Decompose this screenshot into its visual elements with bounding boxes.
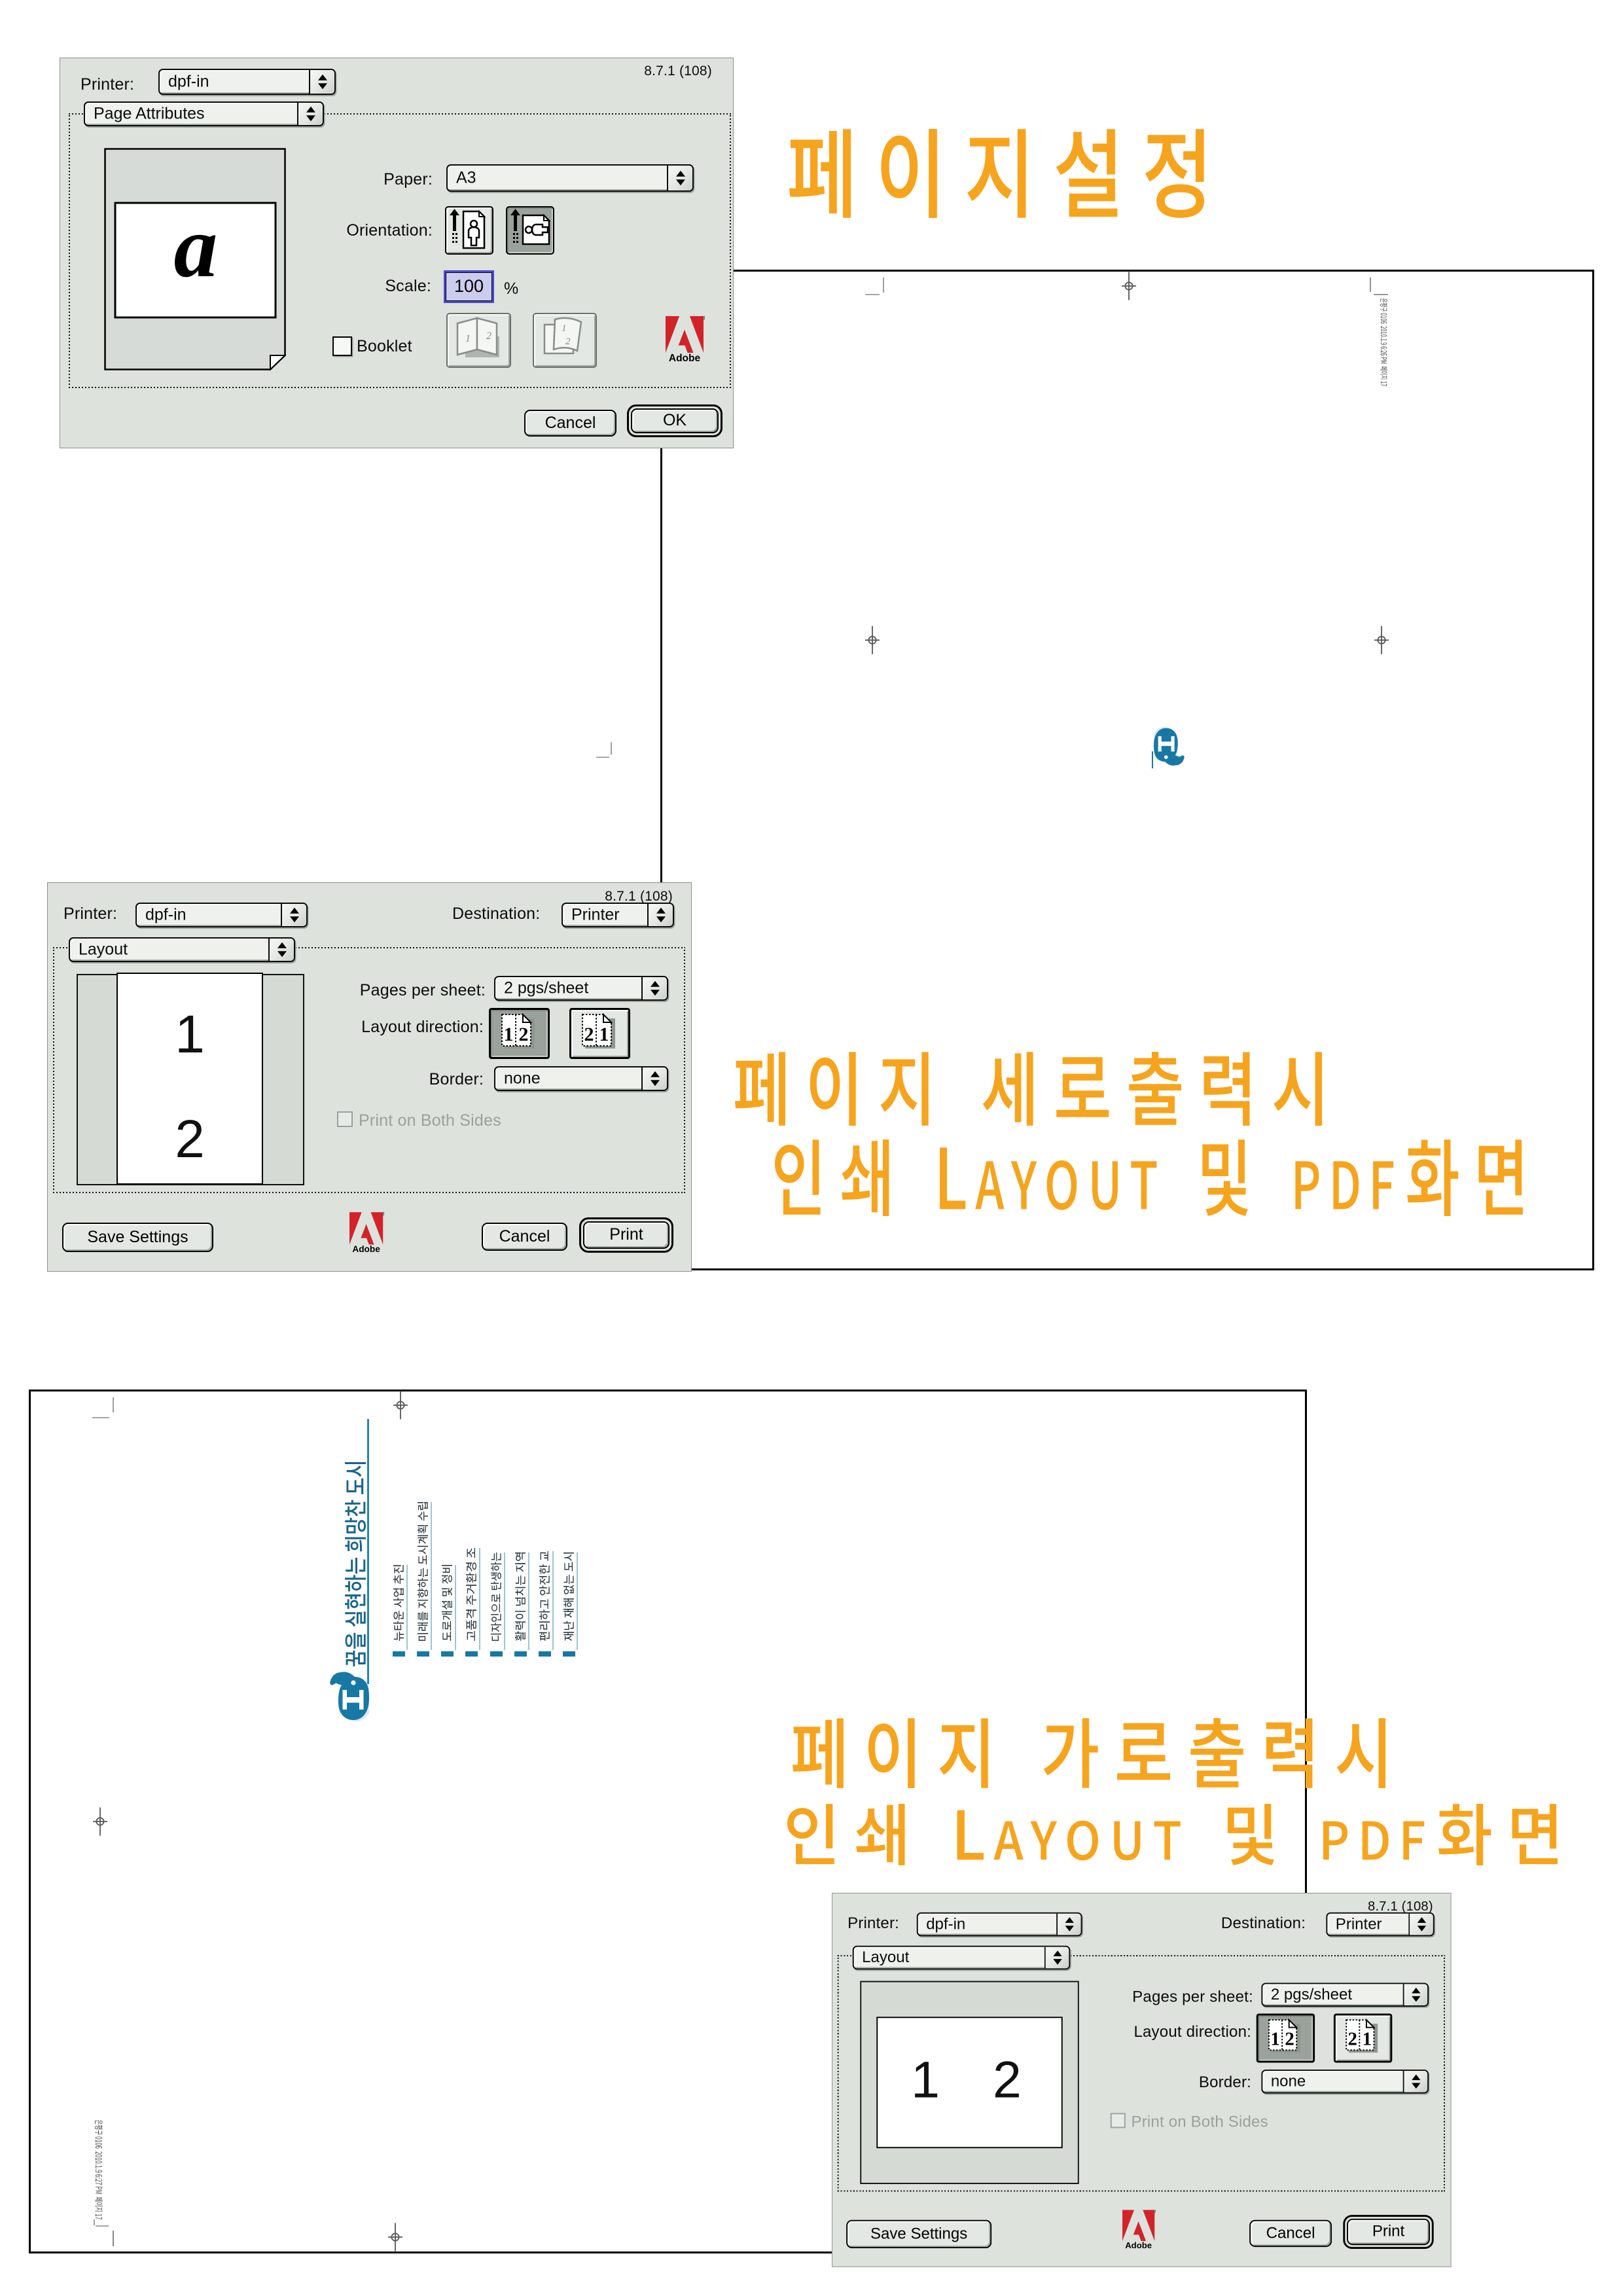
svg-text:1: 1 bbox=[599, 1024, 609, 1045]
svg-text:®: ® bbox=[703, 315, 705, 321]
svg-text:1: 1 bbox=[562, 323, 567, 334]
svg-text:®: ® bbox=[1154, 2209, 1156, 2215]
svg-text:2: 2 bbox=[486, 331, 491, 342]
svg-text:2: 2 bbox=[1285, 2029, 1294, 2050]
svg-text:1: 1 bbox=[1363, 2029, 1372, 2050]
svg-text:1: 1 bbox=[1270, 2029, 1279, 2050]
svg-text:2: 2 bbox=[584, 1024, 594, 1045]
svg-text:2: 2 bbox=[565, 336, 571, 347]
svg-text:1: 1 bbox=[465, 333, 471, 344]
svg-text:Adobe: Adobe bbox=[669, 353, 701, 363]
svg-text:®: ® bbox=[382, 1211, 384, 1217]
svg-text:2: 2 bbox=[519, 1024, 529, 1045]
svg-text:1: 1 bbox=[504, 1024, 514, 1045]
svg-text:Adobe: Adobe bbox=[1125, 2240, 1152, 2250]
svg-text:Adobe: Adobe bbox=[352, 1244, 380, 1254]
svg-text:2: 2 bbox=[1348, 2029, 1357, 2050]
